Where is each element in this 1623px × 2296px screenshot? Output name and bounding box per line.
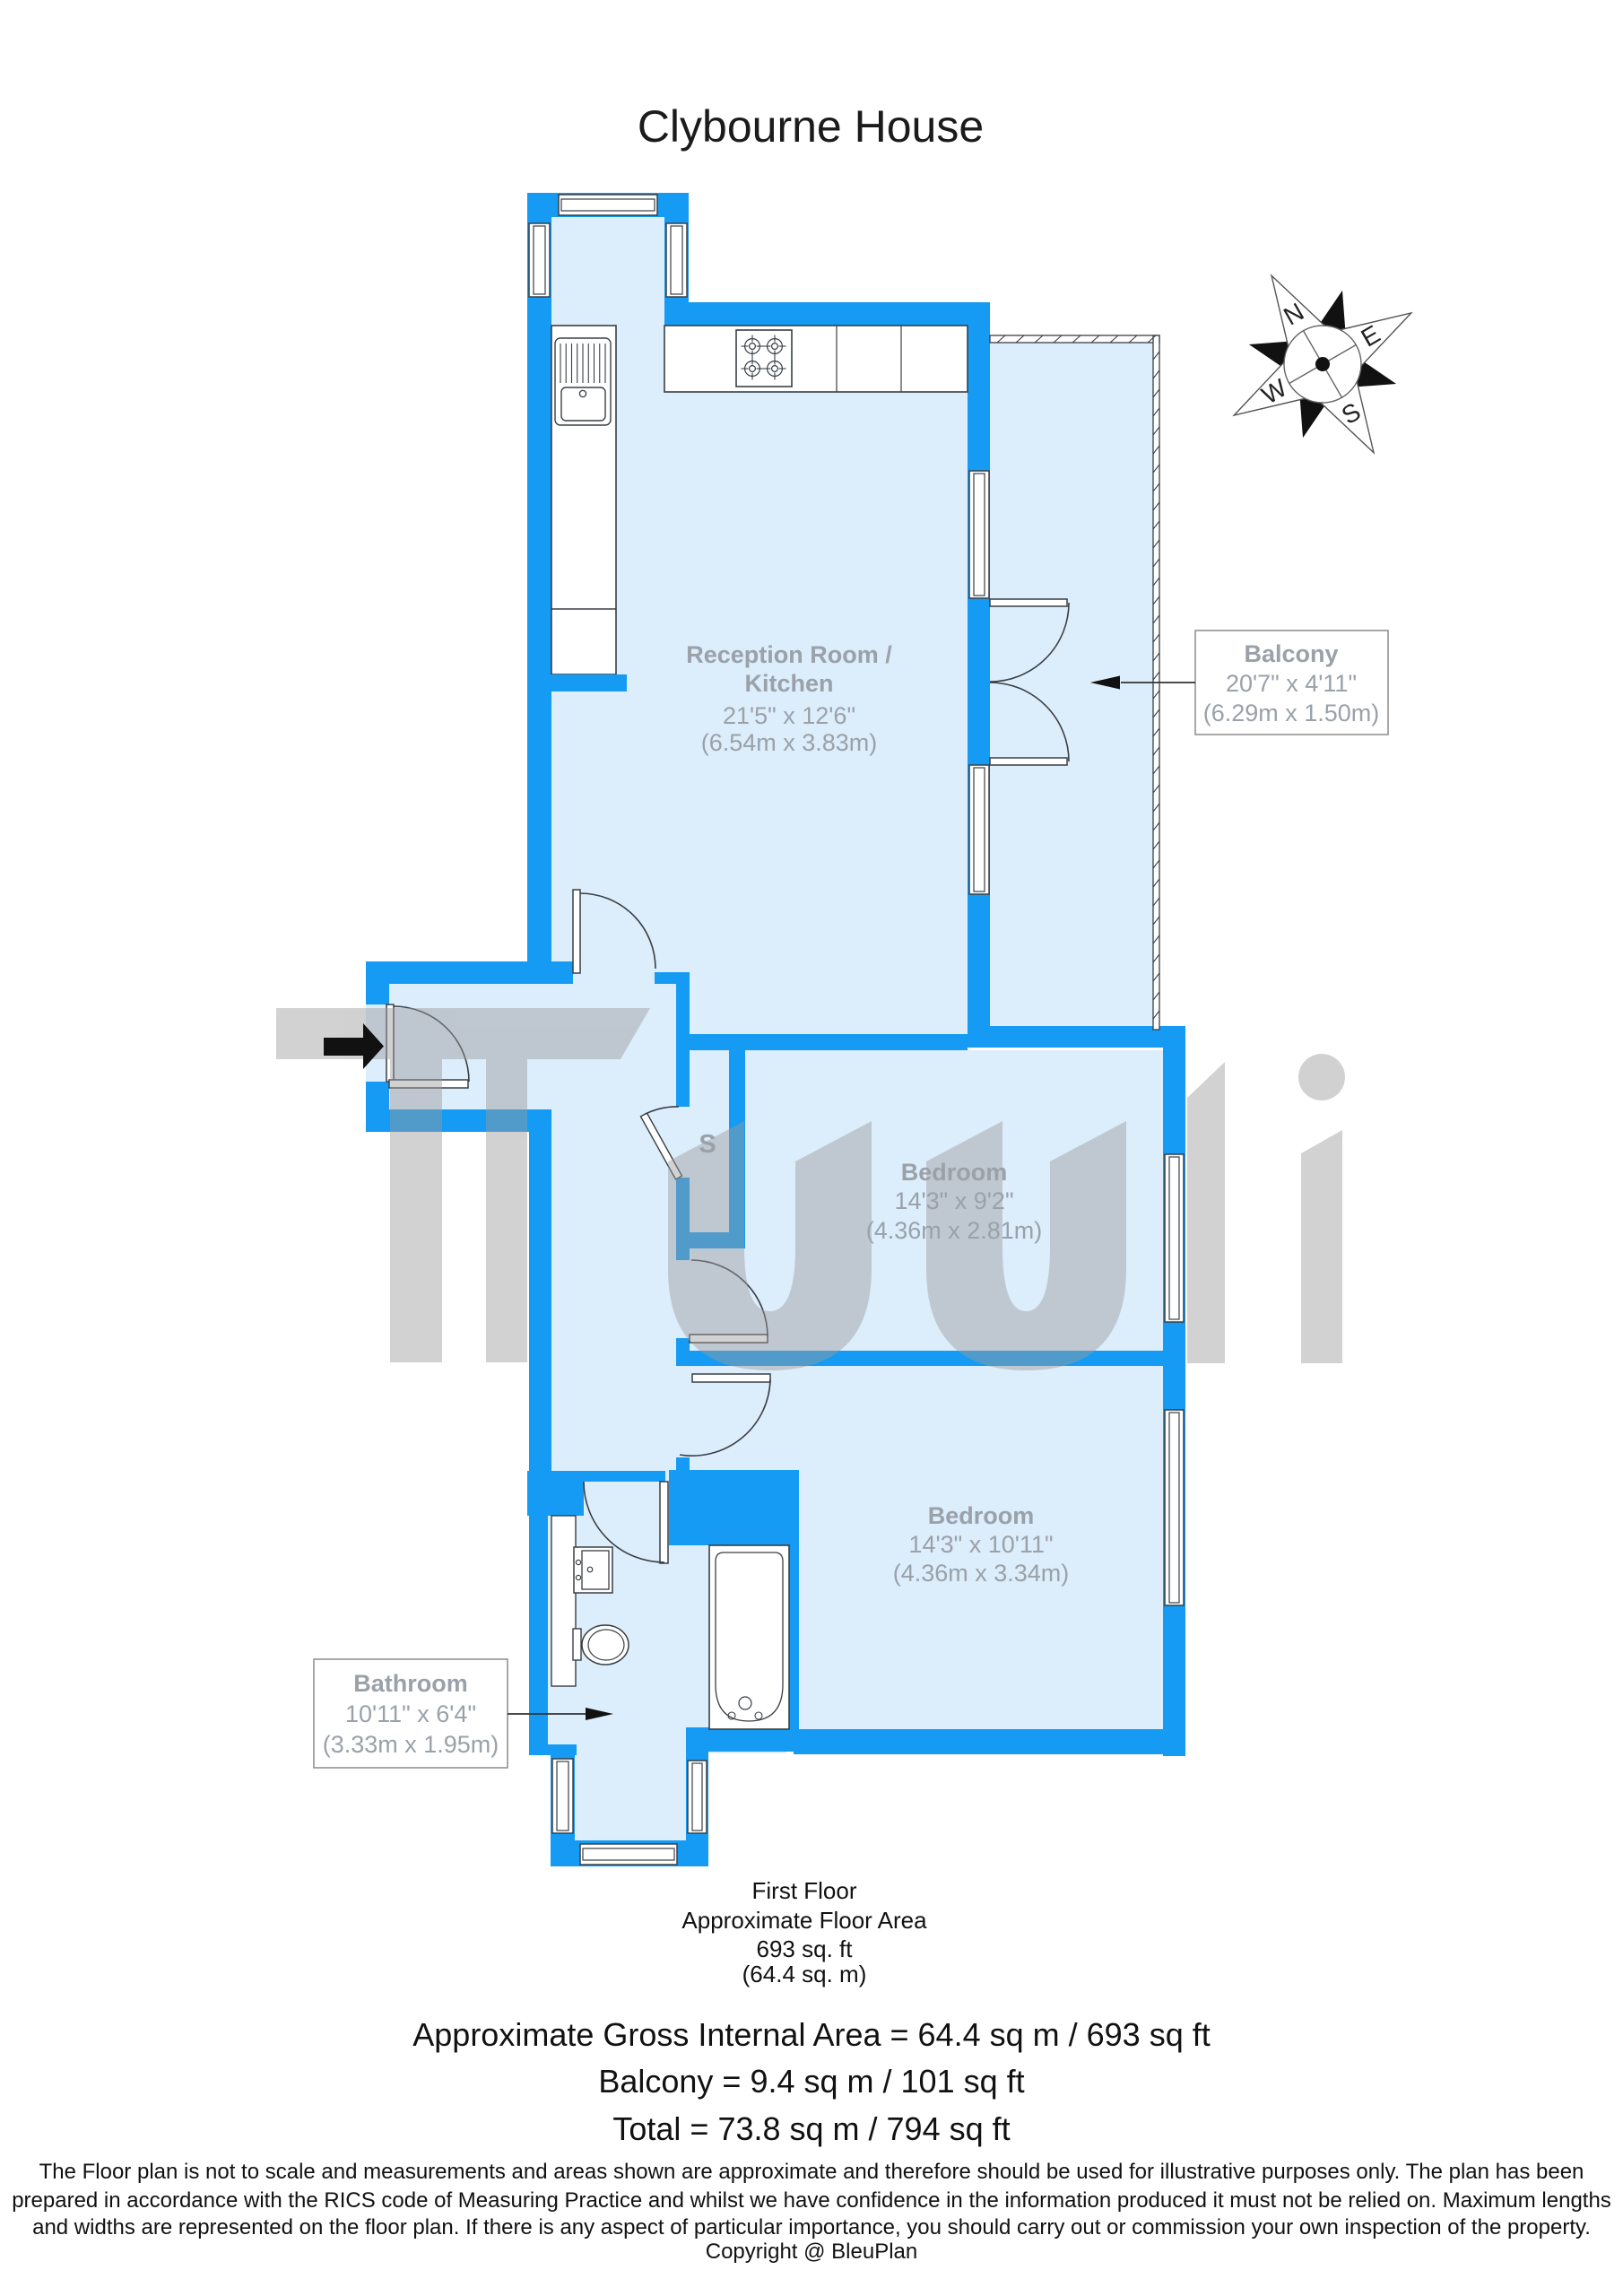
svg-text:(6.54m x 3.83m): (6.54m x 3.83m) <box>701 729 878 756</box>
svg-text:Kitchen: Kitchen <box>744 670 833 697</box>
svg-text:The Floor plan is not to scale: The Floor plan is not to scale and measu… <box>39 2160 1584 2184</box>
svg-text:10'11" x 6'4": 10'11" x 6'4" <box>345 1700 476 1727</box>
svg-text:(4.36m x 2.81m): (4.36m x 2.81m) <box>866 1217 1043 1244</box>
svg-text:Approximate Gross Internal Are: Approximate Gross Internal Area = 64.4 s… <box>412 2016 1210 2053</box>
svg-text:21'5" x 12'6": 21'5" x 12'6" <box>723 702 855 729</box>
svg-text:Balcony: Balcony <box>1244 640 1338 667</box>
svg-text:Bedroom: Bedroom <box>901 1159 1008 1186</box>
svg-text:Clybourne House: Clybourne House <box>638 101 984 152</box>
svg-text:Bedroom: Bedroom <box>928 1502 1035 1529</box>
svg-text:(6.29m x 1.50m): (6.29m x 1.50m) <box>1203 700 1380 726</box>
svg-text:and widths are represented on: and widths are represented on the floor … <box>32 2215 1591 2239</box>
svg-text:(4.36m x 3.34m): (4.36m x 3.34m) <box>893 1560 1070 1587</box>
svg-text:(64.4 sq. m): (64.4 sq. m) <box>742 1961 867 1987</box>
svg-text:S: S <box>699 1130 716 1159</box>
svg-text:Reception Room /: Reception Room / <box>686 641 892 668</box>
svg-text:Copyright @ BleuPlan: Copyright @ BleuPlan <box>706 2239 917 2264</box>
svg-text:Approximate Floor Area: Approximate Floor Area <box>681 1907 927 1934</box>
svg-text:Bathroom: Bathroom <box>353 1670 468 1697</box>
svg-text:20'7" x 4'11": 20'7" x 4'11" <box>1226 670 1357 697</box>
svg-text:prepared in accordance with th: prepared in accordance with the RICS cod… <box>12 2188 1611 2213</box>
svg-text:14'3" x 9'2": 14'3" x 9'2" <box>894 1187 1013 1214</box>
svg-text:Total = 73.8 sq m / 794 sq ft: Total = 73.8 sq m / 794 sq ft <box>612 2110 1010 2147</box>
svg-text:693 sq. ft: 693 sq. ft <box>757 1935 854 1962</box>
svg-text:First Floor: First Floor <box>752 1877 857 1904</box>
svg-text:(3.33m x 1.95m): (3.33m x 1.95m) <box>323 1731 499 1758</box>
svg-text:Balcony = 9.4 sq m / 101 sq ft: Balcony = 9.4 sq m / 101 sq ft <box>598 2063 1024 2100</box>
svg-text:14'3" x 10'11": 14'3" x 10'11" <box>908 1531 1053 1558</box>
